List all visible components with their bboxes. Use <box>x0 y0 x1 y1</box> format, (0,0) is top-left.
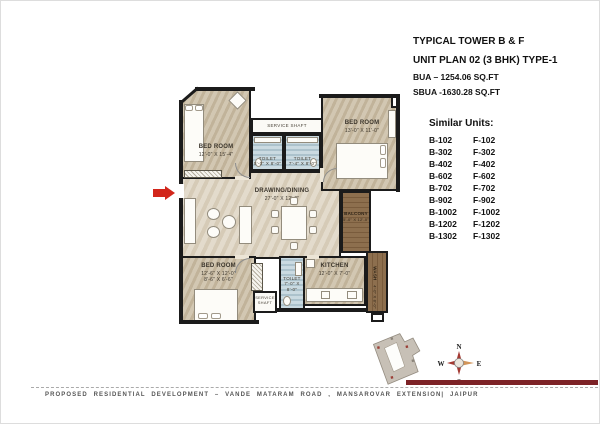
toilet-label: TOILET 5'-0" X 8'-0" <box>251 156 284 167</box>
similar-units-row: B-1202F-1202 <box>429 218 525 230</box>
unit-f: F-402 <box>473 159 525 169</box>
entry-door-gap <box>179 184 184 198</box>
pillow <box>380 158 386 168</box>
dining-chair-icon <box>271 226 279 234</box>
tower-title: TYPICAL TOWER B & F <box>413 36 524 47</box>
room-label: BED ROOM 12'-0" X 15'-4" <box>183 144 249 158</box>
dining-table-icon <box>281 206 307 240</box>
wardrobe-icon <box>251 263 263 291</box>
floor-plan: BED ROOM 12'-0" X 15'-4" SERVICE SHAFT T… <box>151 86 403 336</box>
compass-w-label: W <box>438 360 445 368</box>
wash-step <box>371 313 384 322</box>
service-shaft-label: SERVICE SHAFT <box>253 296 277 306</box>
drawing-dining-room <box>181 171 341 259</box>
sofa-icon <box>239 206 252 244</box>
dining-chair-icon <box>290 242 298 250</box>
unit-f: F-1002 <box>473 207 525 217</box>
armchair-icon <box>207 226 220 238</box>
wc-icon <box>283 296 291 306</box>
room-dims: 7'-4" X 8'-0" <box>284 161 321 166</box>
room-name: BED ROOM <box>331 120 393 128</box>
site-plan-icon <box>367 331 425 387</box>
unit-b: B-1302 <box>429 231 473 241</box>
unit-b: B-1002 <box>429 207 473 217</box>
similar-units-row: B-402F-402 <box>429 158 525 170</box>
outer-wall <box>277 308 367 312</box>
similar-units-row: B-602F-602 <box>429 170 525 182</box>
fridge-icon <box>306 259 315 268</box>
similar-units-row: B-902F-902 <box>429 194 525 206</box>
unit-f: F-1302 <box>473 231 525 241</box>
unit-f: F-602 <box>473 171 525 181</box>
unit-f: F-902 <box>473 195 525 205</box>
outer-wall <box>179 320 259 324</box>
room-name: WASH <box>372 266 377 280</box>
room-name: BALCONY <box>341 211 371 217</box>
washbasin-counter-icon <box>287 137 318 143</box>
sofa-icon <box>184 198 196 244</box>
room-label: DRAWING/DINING 27'-0" X 12'-0" <box>222 188 342 202</box>
unit-b: B-902 <box>429 195 473 205</box>
unit-f: F-1202 <box>473 219 525 229</box>
similar-units-list: B-102F-102 B-302F-302 B-402F-402 B-602F-… <box>429 134 525 242</box>
entry-arrow-bar <box>153 189 165 197</box>
door-gap <box>307 255 319 259</box>
room-dims: 4'-0" X 8'-0" <box>372 285 377 308</box>
room-name: DRAWING/DINING <box>222 188 342 196</box>
toilet-label: TOILET 7'-0" X 8'-0" <box>279 276 305 292</box>
pillow <box>198 313 208 319</box>
sink-icon <box>347 291 357 299</box>
floor-plan-page: TYPICAL TOWER B & F UNIT PLAN 02 (3 BHK)… <box>0 0 600 424</box>
room-label: WASH 4'-0" X 8'-0" <box>367 255 388 319</box>
similar-units-row: B-1002F-1002 <box>429 206 525 218</box>
outer-wall <box>396 94 400 192</box>
room-dims: 7'-0" X 8'-0" <box>279 281 305 292</box>
dining-chair-icon <box>271 210 279 218</box>
washbasin-counter-icon <box>295 262 302 276</box>
unit-f: F-102 <box>473 135 525 145</box>
outer-wall <box>179 100 183 324</box>
footer-divider <box>31 387 598 388</box>
pillow <box>380 145 386 155</box>
room-dims: 12'-0" X 7'-0" <box>303 271 366 278</box>
washbasin-counter-icon <box>254 137 281 143</box>
unit-f: F-702 <box>473 183 525 193</box>
room-dims: 13'-0" X 11'-0" <box>331 128 393 135</box>
unit-b: B-402 <box>429 159 473 169</box>
room-dims: 5'-0" X 12'-0" <box>341 217 371 222</box>
room-dims: 27'-0" X 12'-0" <box>222 196 342 203</box>
compass-e-label: E <box>477 360 482 368</box>
pillow <box>211 313 221 319</box>
service-shaft-label: SERVICE SHAFT <box>251 123 323 128</box>
outer-wall <box>319 94 400 98</box>
room-dims-2: 8'-6" X 6'-6" <box>183 277 254 284</box>
dining-chair-icon <box>309 226 317 234</box>
room-name: BED ROOM <box>183 144 249 152</box>
bua-text: BUA – 1254.06 SQ.FT <box>413 72 499 82</box>
room-label: BED ROOM 13'-0" X 11'-0" <box>331 120 393 134</box>
entry-arrow-icon <box>153 186 177 200</box>
room-dims: 12'-0" X 15'-4" <box>183 152 249 159</box>
hob-icon <box>321 291 330 299</box>
similar-units-row: B-102F-102 <box>429 134 525 146</box>
similar-units-title: Similar Units: <box>429 118 493 129</box>
unit-b: B-1202 <box>429 219 473 229</box>
unit-b: B-102 <box>429 135 473 145</box>
pillow <box>185 105 193 111</box>
armchair-icon <box>207 208 220 220</box>
similar-units-row: B-302F-302 <box>429 146 525 158</box>
compass-n-label: N <box>456 343 461 351</box>
outer-wall <box>195 87 255 91</box>
pillow <box>195 105 203 111</box>
toilet-label: TOILET 7'-4" X 8'-0" <box>284 156 321 167</box>
unit-b: B-602 <box>429 171 473 181</box>
unit-b: B-702 <box>429 183 473 193</box>
compass-center <box>455 359 464 368</box>
entry-arrow-head <box>165 186 175 200</box>
room-label: BALCONY 5'-0" X 12'-0" <box>341 211 371 222</box>
dining-chair-icon <box>290 197 298 205</box>
similar-units-row: B-702F-702 <box>429 182 525 194</box>
sbua-text: SBUA -1630.28 SQ.FT <box>413 87 500 97</box>
dining-chair-icon <box>309 210 317 218</box>
footer-accent-bar <box>406 380 598 385</box>
unit-f: F-302 <box>473 147 525 157</box>
unit-b: B-302 <box>429 147 473 157</box>
coffee-table-icon <box>222 215 236 229</box>
unit-plan-title: UNIT PLAN 02 (3 BHK) TYPE-1 <box>413 55 557 66</box>
similar-units-row: B-1302F-1302 <box>429 230 525 242</box>
wardrobe-icon <box>184 170 222 178</box>
room-dims: 5'-0" X 8'-0" <box>251 161 284 166</box>
footer-text: PROPOSED RESIDENTIAL DEVELOPMENT – VANDE… <box>45 392 479 398</box>
